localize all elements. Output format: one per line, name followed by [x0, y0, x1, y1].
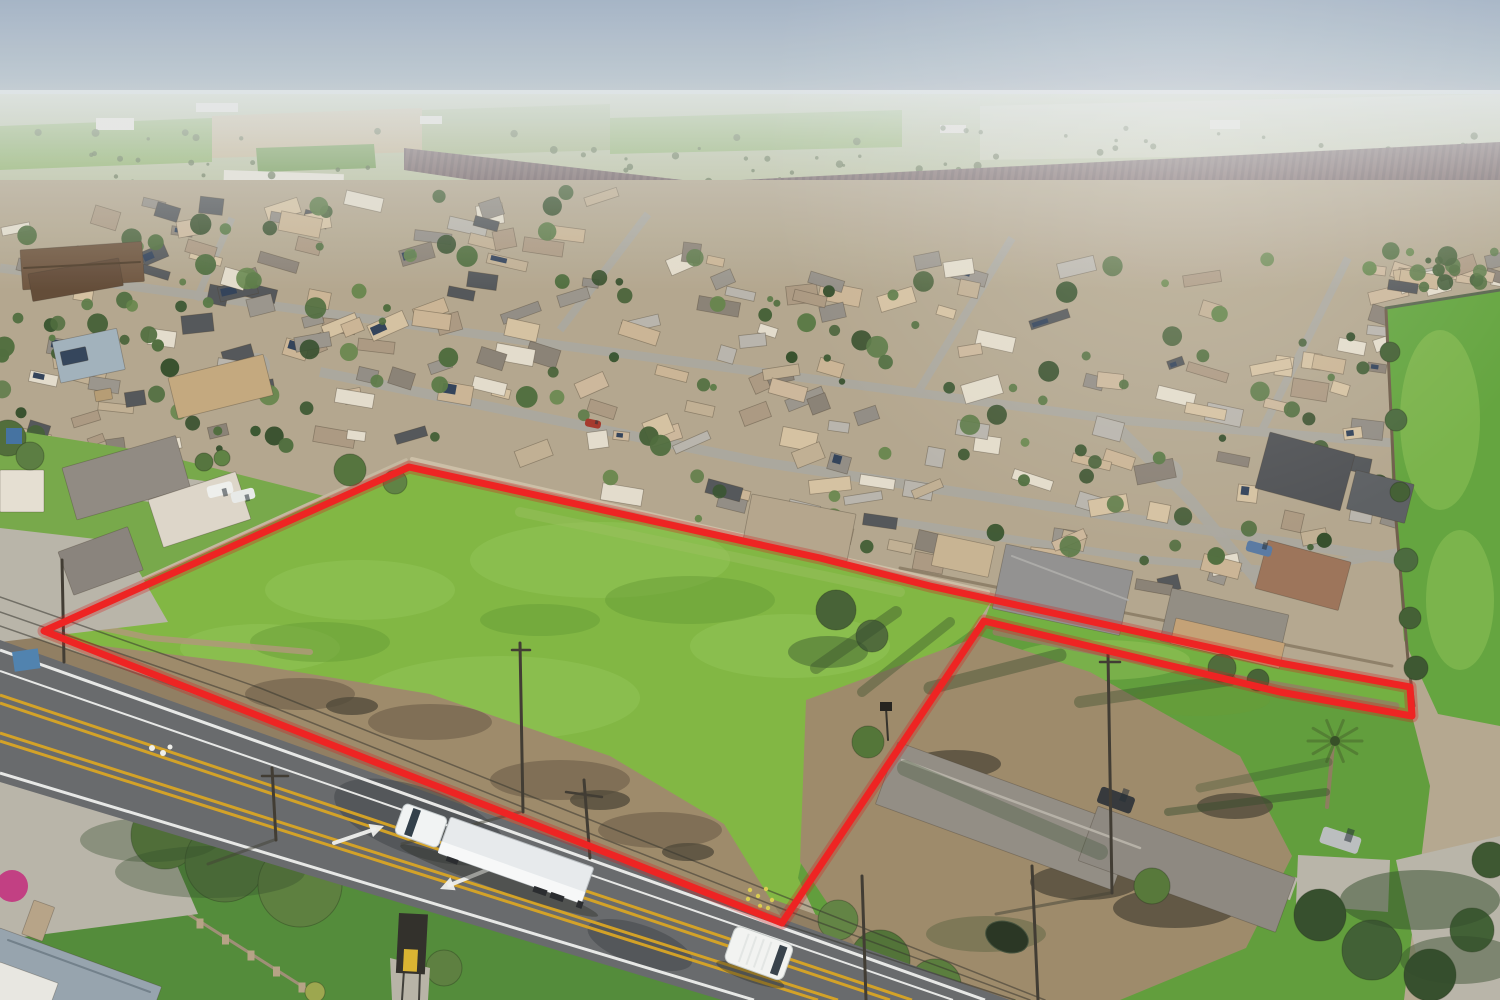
aerial-photo — [0, 0, 1500, 1000]
aerial-photo-scene — [0, 0, 1500, 1000]
warm-tint — [0, 0, 1500, 1000]
